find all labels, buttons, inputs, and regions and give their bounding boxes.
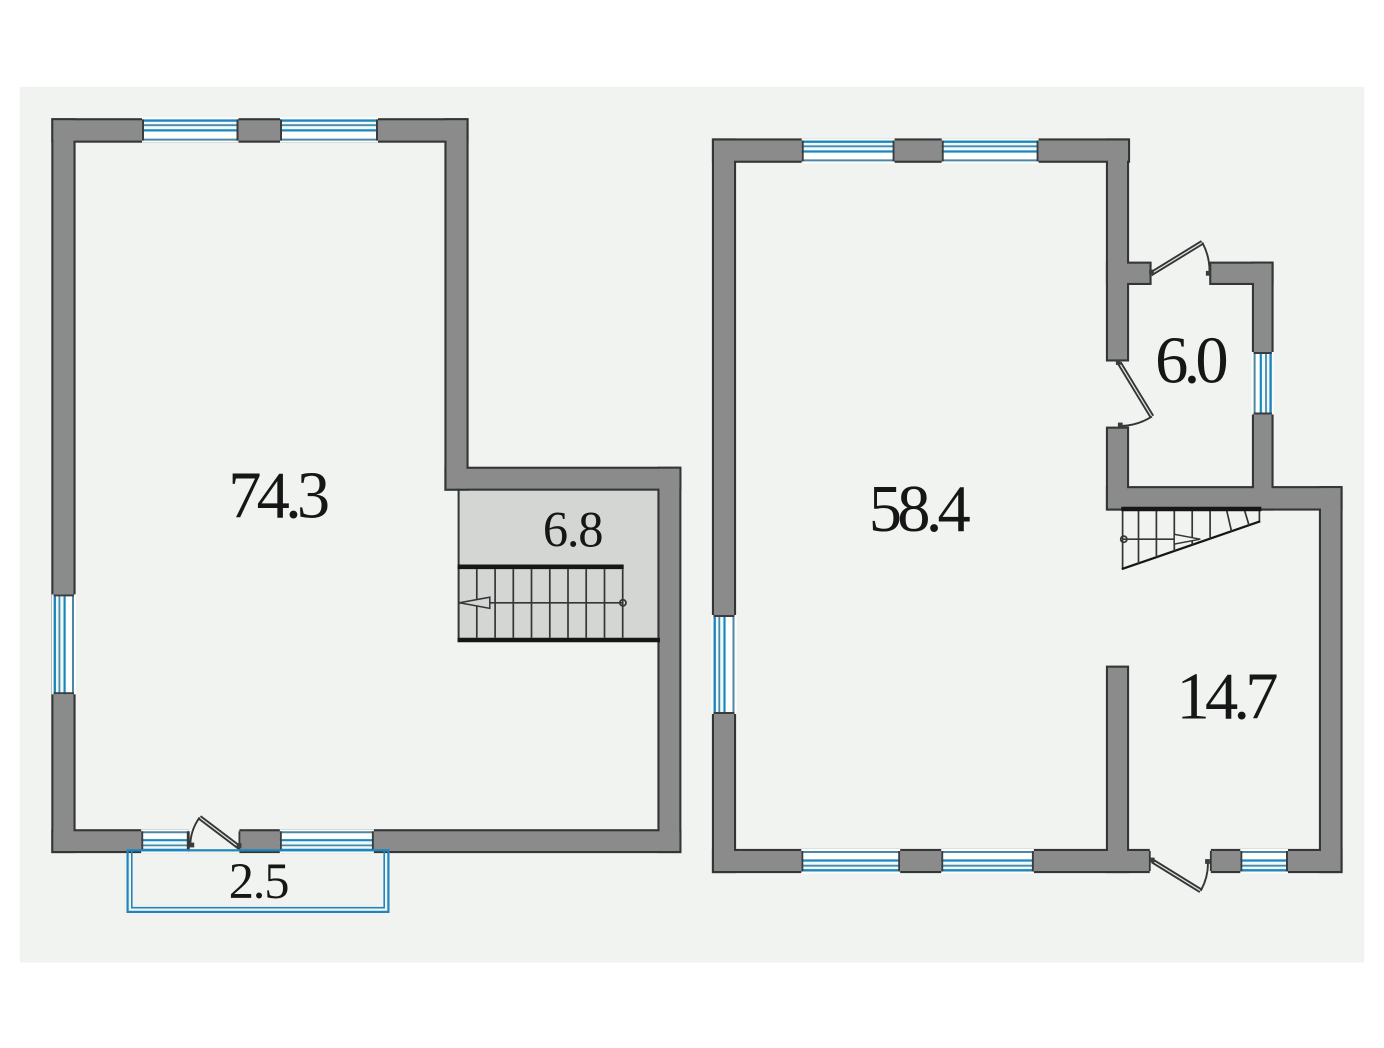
svg-text:2.5: 2.5 bbox=[229, 853, 289, 909]
svg-text:6.0: 6.0 bbox=[1155, 324, 1226, 397]
svg-text:58.4: 58.4 bbox=[869, 473, 971, 546]
svg-text:6.8: 6.8 bbox=[543, 502, 603, 558]
svg-text:14.7: 14.7 bbox=[1177, 660, 1278, 733]
svg-text:74.3: 74.3 bbox=[228, 460, 328, 533]
